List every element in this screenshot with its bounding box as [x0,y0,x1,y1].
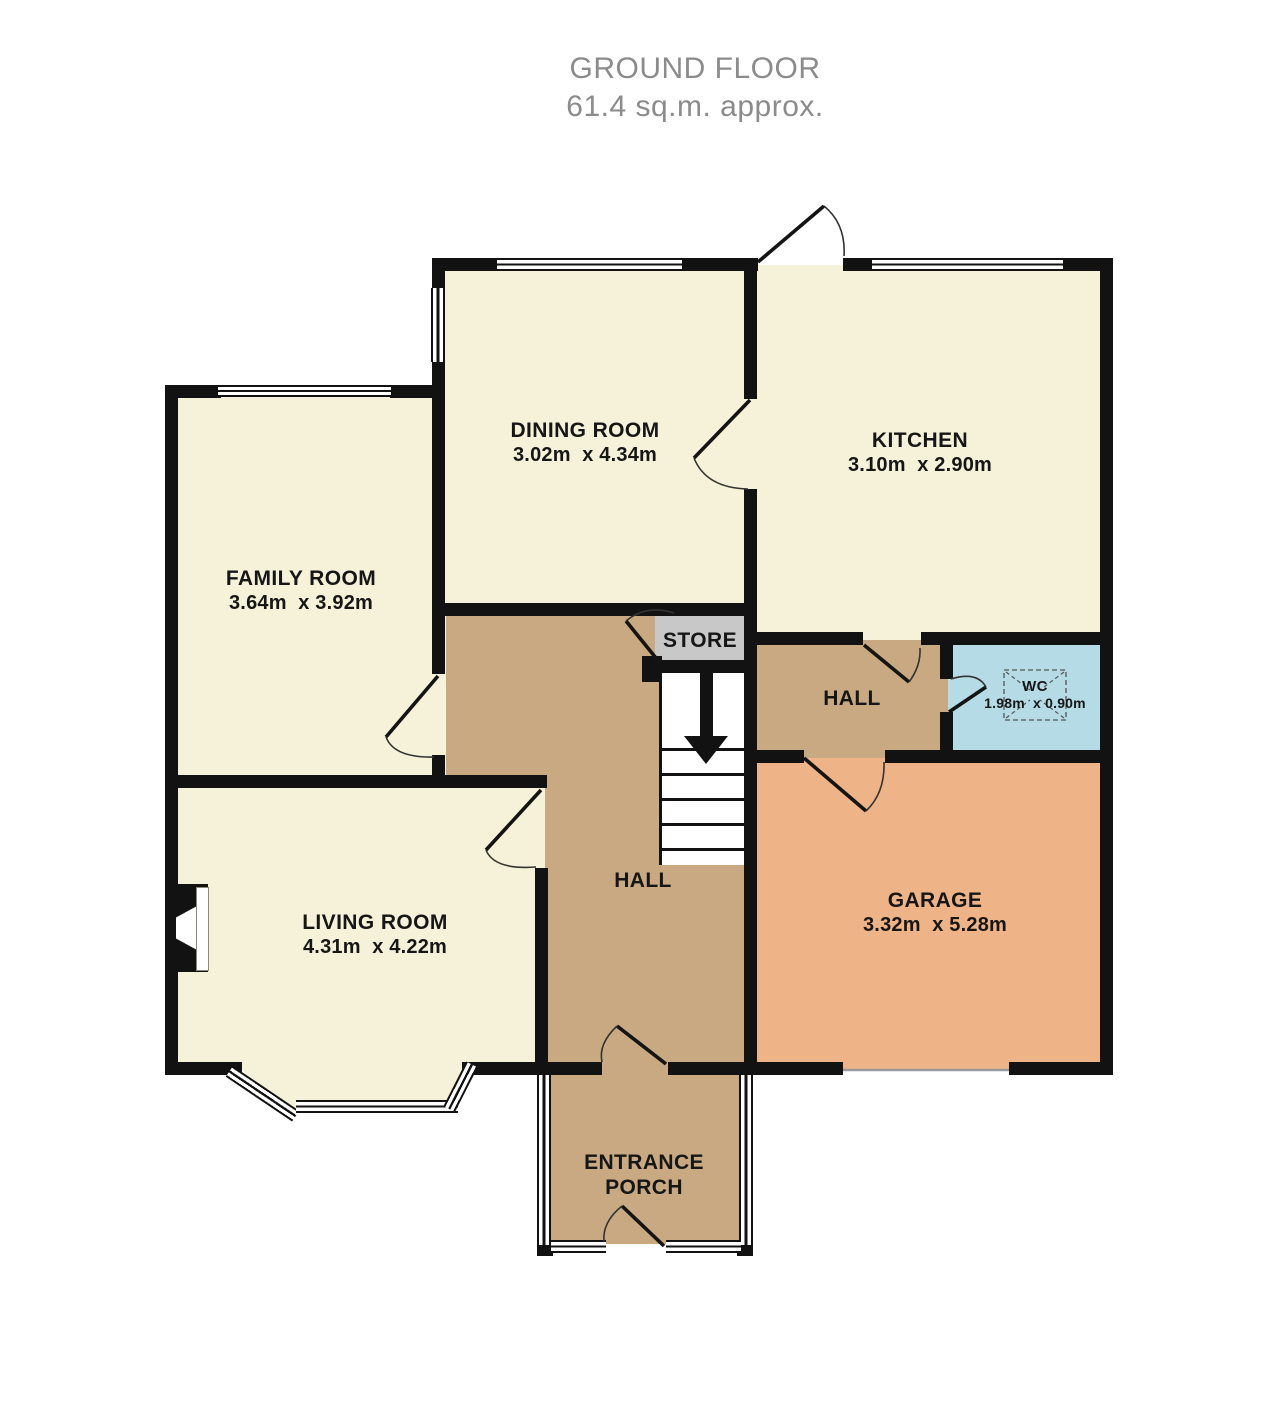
window [218,385,391,397]
stair-tread [662,823,744,826]
room-label-dining: DINING ROOM 3.02m x 4.34m [435,418,735,468]
room-label-living: LIVING ROOM 4.31m x 4.22m [225,910,525,960]
wall [744,615,757,1075]
stair-tread [662,848,744,851]
room-label-porch: ENTRANCE PORCH [544,1150,744,1200]
fireplace-hearth [196,887,209,971]
window [431,288,445,362]
floor-title: GROUND FLOOR 61.4 sq.m. approx. [445,50,945,126]
wall [165,775,547,788]
wall [843,258,873,271]
room-label-wc: WC 1.98m x 0.90m [955,678,1115,712]
wall [390,385,445,398]
stair-arrow-head [684,736,728,764]
room-label-store: STORE [650,628,750,653]
floor-title-line2: 61.4 sq.m. approx. [445,88,945,126]
window-porch-front-right [666,1240,741,1253]
floor-title-line1: GROUND FLOOR [445,50,945,88]
stair-tread [662,773,744,776]
wall [432,603,757,616]
door-arc [824,206,844,256]
stair-side-line [659,668,662,865]
room-label-hall-rear: HALL [792,686,912,711]
wall [1009,1062,1113,1075]
stair-tread [662,798,744,801]
wall [940,632,953,679]
wall [744,1062,843,1075]
wall [757,750,804,763]
room-label-kitchen: KITCHEN 3.10m x 2.90m [770,428,1070,478]
wall [757,632,863,645]
wall [1100,258,1113,1075]
window-porch-front-left [551,1240,606,1253]
wall [432,755,445,788]
room-label-hall-main: HALL [583,868,703,893]
room-label-family: FAMILY ROOM 3.64m x 3.92m [151,566,451,616]
wall [744,489,757,615]
window-bay-front [296,1100,458,1113]
room-label-garage: GARAGE 3.32m x 5.28m [785,888,1085,938]
wall [744,258,757,399]
wall [642,656,662,682]
wall [432,615,445,674]
wall [885,750,1113,763]
floor-plan: GROUND FLOOR 61.4 sq.m. approx. DINING R… [0,0,1280,1421]
wall [535,868,548,1075]
window [872,258,1063,271]
window [497,258,682,271]
door-leaf [758,206,824,262]
stair-arrow-down [700,671,713,737]
